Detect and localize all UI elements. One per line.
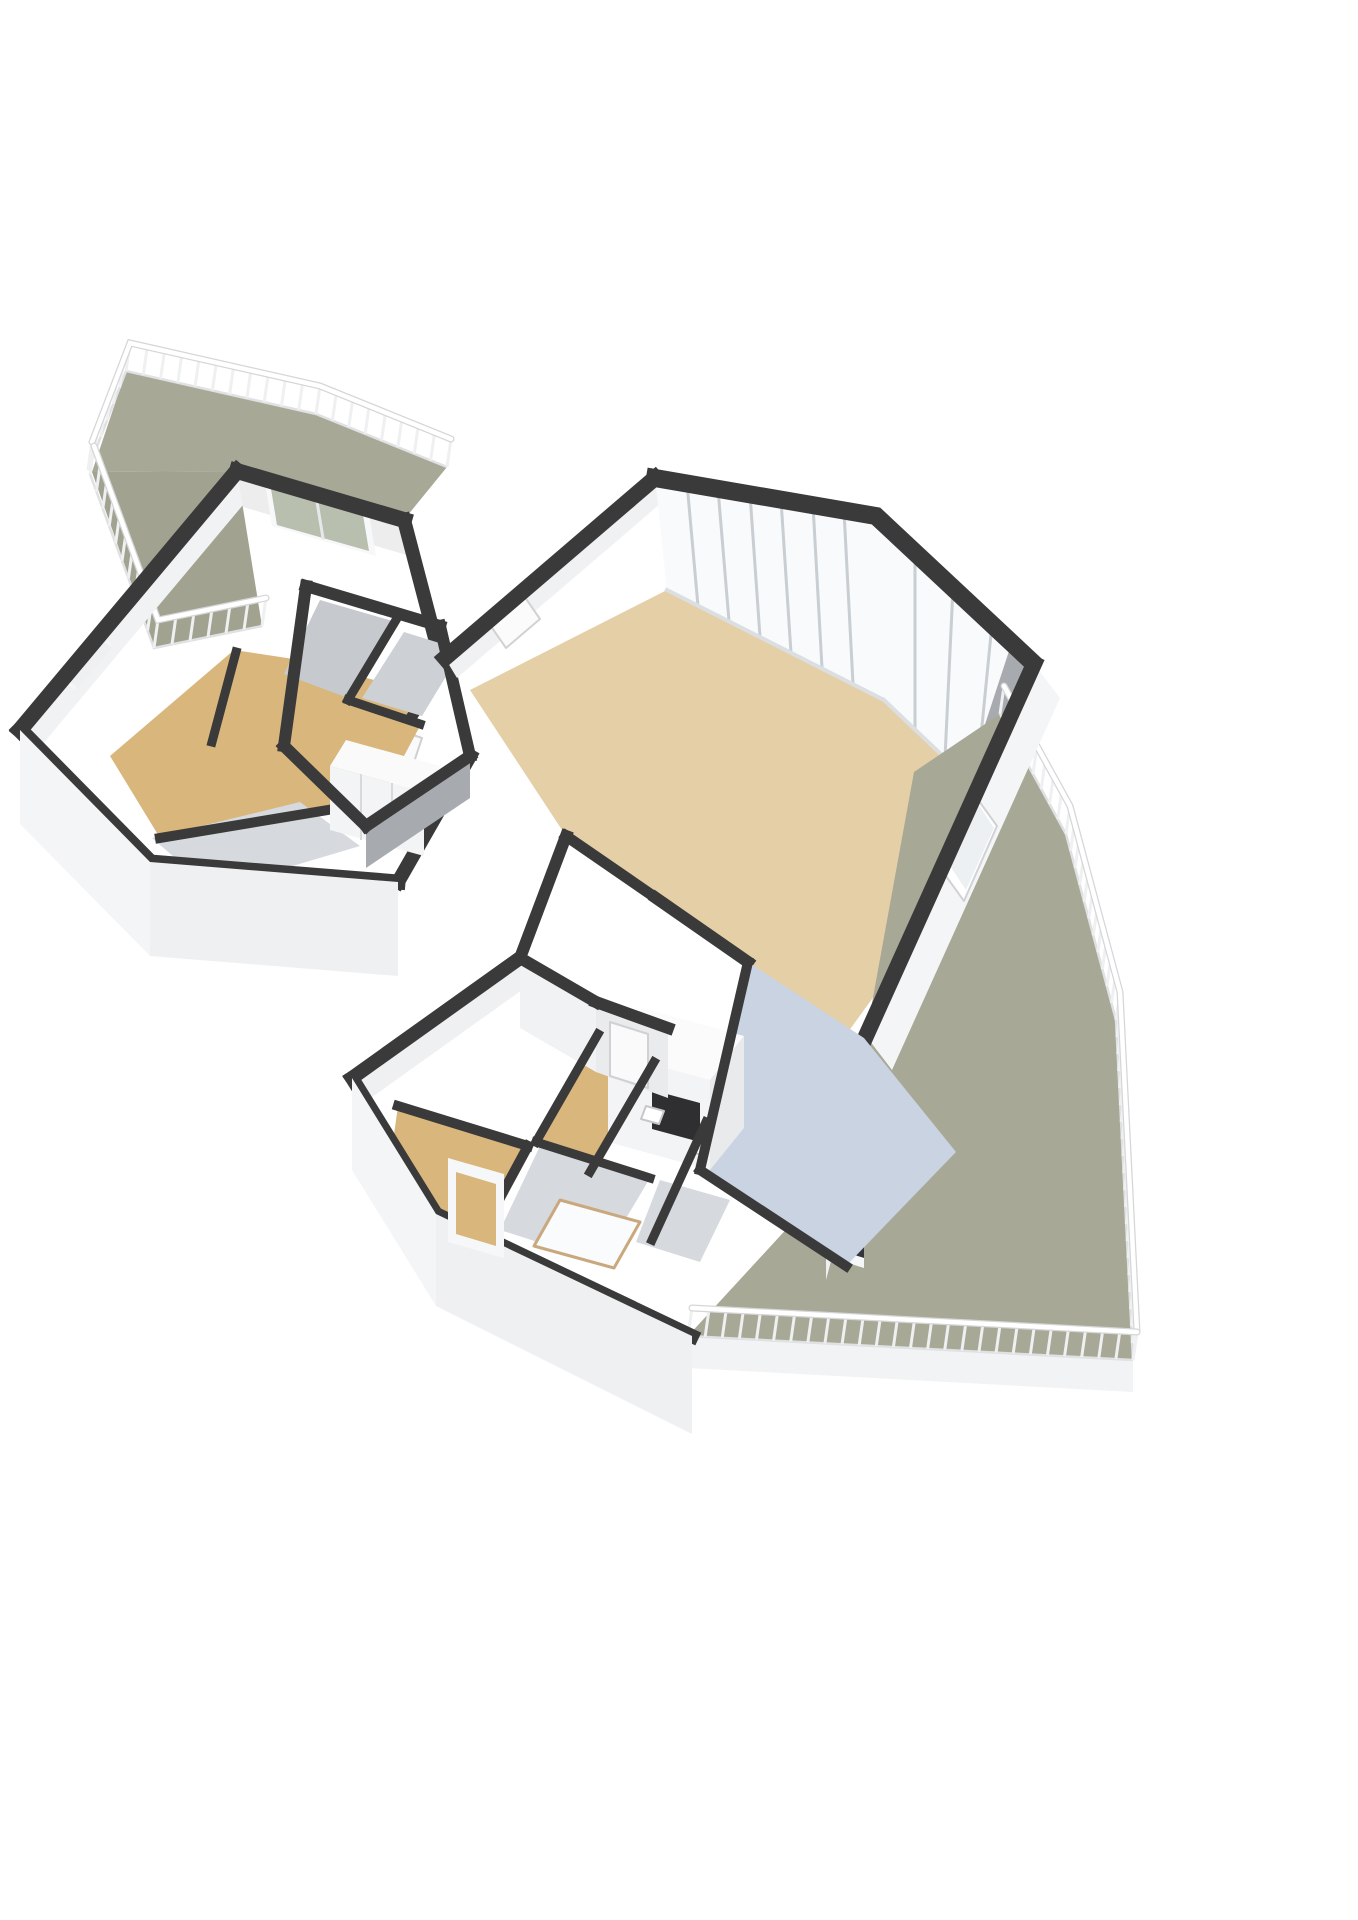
wing1-exterior-s [150, 862, 398, 976]
floorplan-3d-svg [0, 0, 1358, 1920]
floorplan-stage: 3D floor plan [0, 0, 1358, 1920]
bedroom-s-window-glass [456, 1172, 496, 1246]
